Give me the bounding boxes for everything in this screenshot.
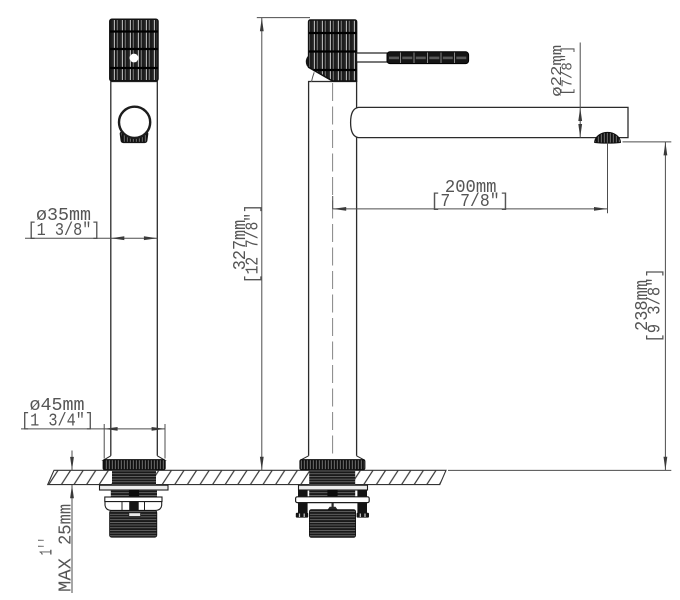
svg-text:[12 7/8"]: [12 7/8"]	[244, 204, 264, 283]
svg-text:1'': 1''	[37, 537, 57, 555]
svg-text:25mm: 25mm	[57, 504, 77, 545]
svg-text:MAX: MAX	[57, 558, 77, 592]
svg-text:[1 3/4"]: [1 3/4"]	[21, 411, 94, 431]
svg-text:[9 3/8"]: [9 3/8"]	[645, 268, 665, 342]
svg-text:[7/8"]: [7/8"]	[559, 46, 576, 96]
